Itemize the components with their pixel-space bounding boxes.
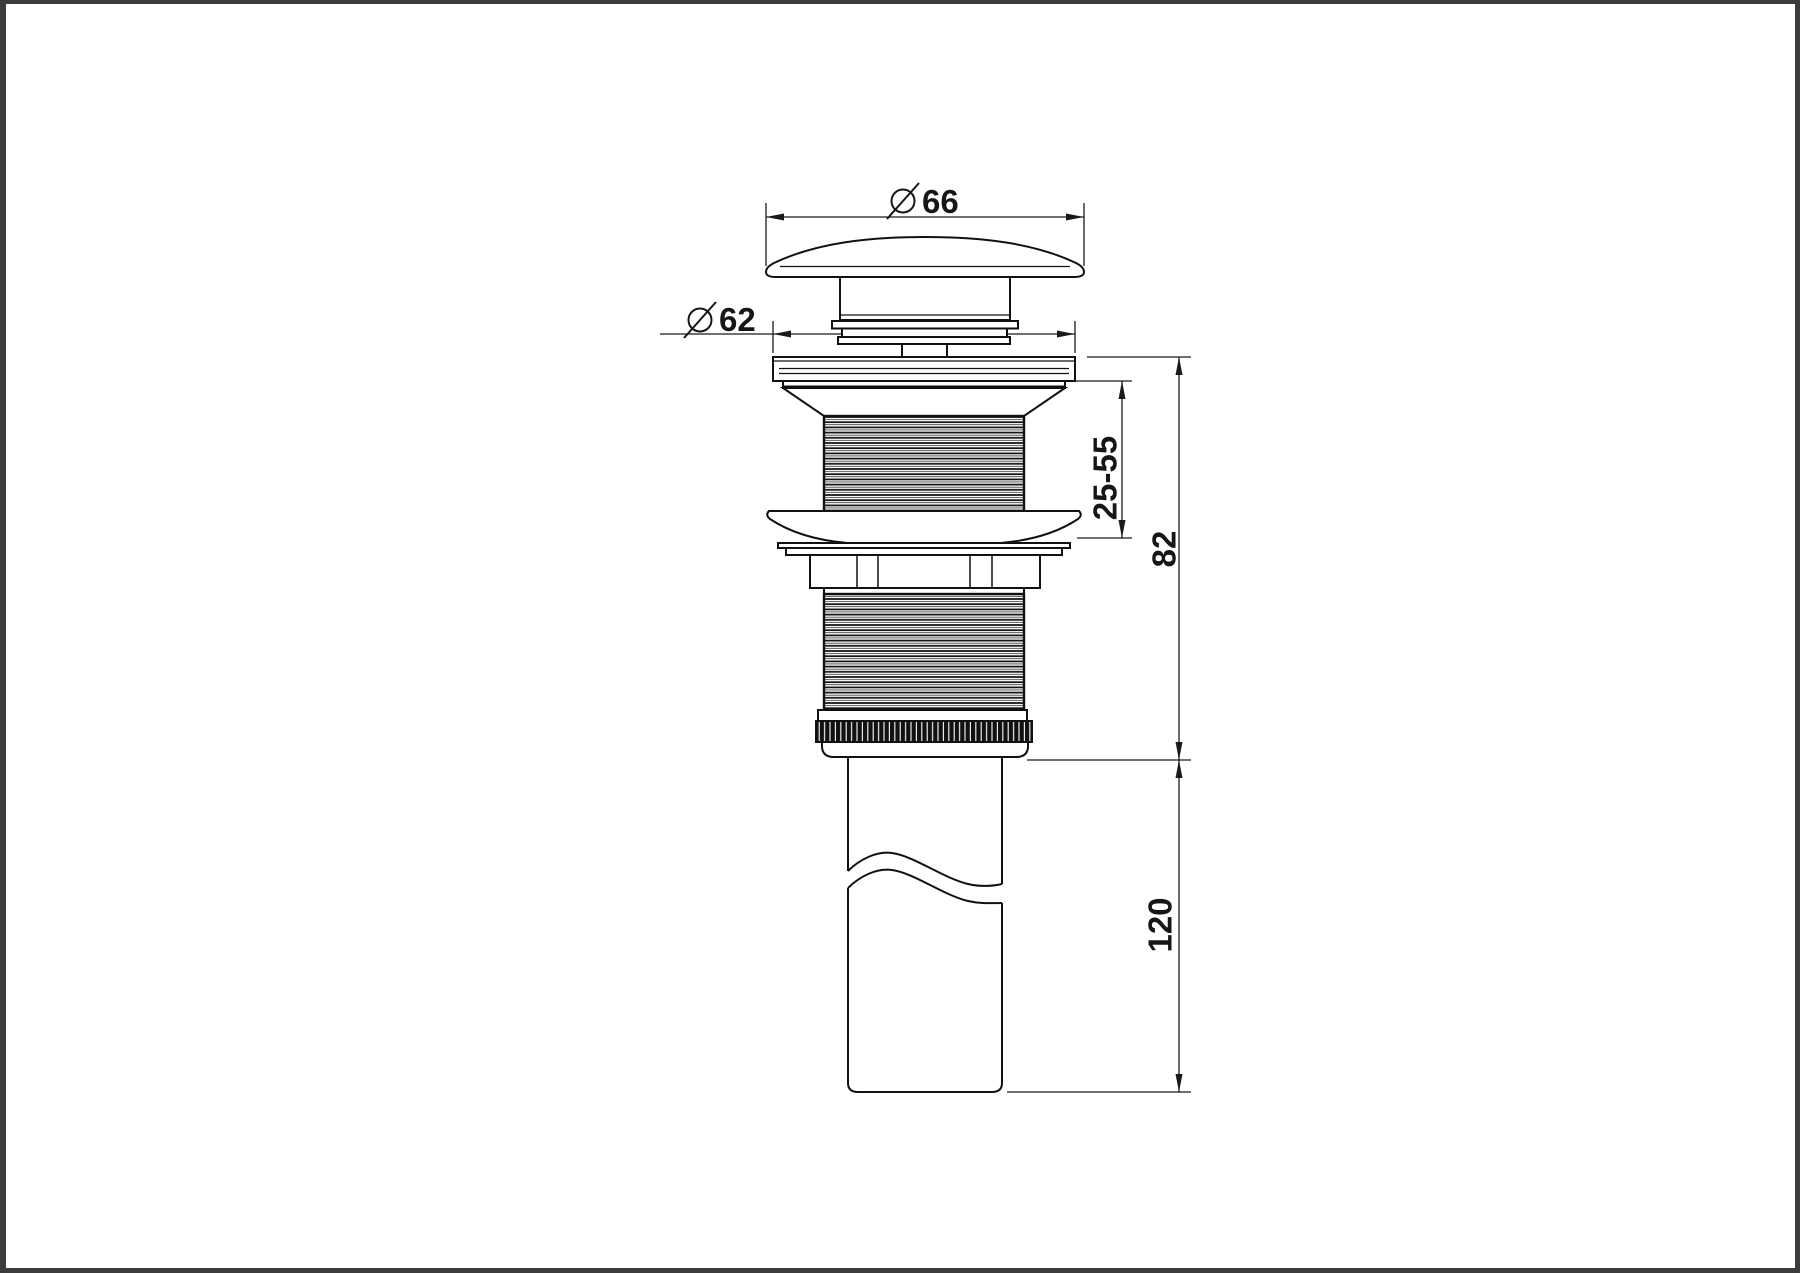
washer-step <box>786 548 1062 555</box>
arrowhead-left-icon <box>773 331 791 338</box>
ring-band <box>842 329 1007 338</box>
technical-drawing: 66 62 25-55 <box>0 0 1800 1273</box>
body-height-value: 82 <box>1146 531 1183 568</box>
ring-slab <box>838 337 1010 344</box>
diameter-symbol <box>684 302 716 338</box>
upper-collar <box>818 710 1027 721</box>
tailpipe <box>848 757 1002 1092</box>
arrowhead-up-icon <box>1176 357 1183 375</box>
tailpipe-lower-part <box>848 888 1002 1092</box>
cap-stem <box>840 277 1010 320</box>
dimension-tail-length: 120 <box>1007 760 1191 1092</box>
arrowhead-down-icon <box>1119 520 1126 538</box>
arrowhead-down-icon <box>1176 742 1183 760</box>
retaining-ring <box>832 321 1018 329</box>
lock-nut <box>810 555 1040 588</box>
sliding-washer <box>767 511 1081 543</box>
lower-collar <box>822 742 1028 757</box>
tail-length-value: 120 <box>1142 897 1179 952</box>
knurled-ring <box>816 721 1032 742</box>
break-wave-upper <box>848 853 1002 886</box>
arrowhead-left-icon <box>766 214 784 221</box>
diameter-symbol <box>887 183 919 219</box>
dimension-body-height: 82 <box>1027 357 1191 760</box>
cap-diameter-value: 66 <box>922 183 959 220</box>
cone-transition <box>783 388 1065 416</box>
mechanism-neck <box>902 344 947 357</box>
arrowhead-down-icon <box>1176 1074 1183 1092</box>
arrowhead-right-icon <box>1057 331 1075 338</box>
drain-body <box>766 237 1084 1092</box>
lower-thread-section <box>824 594 1024 710</box>
clamp-range-value: 25-55 <box>1087 436 1124 520</box>
flange-diameter-value: 62 <box>719 301 756 338</box>
arrowhead-up-icon <box>1119 381 1126 399</box>
arrowhead-up-icon <box>1176 760 1183 778</box>
arrowhead-right-icon <box>1066 214 1084 221</box>
drawing-canvas: 66 62 25-55 <box>0 0 1800 1273</box>
cap-dome <box>766 237 1084 277</box>
upper-thread-section <box>824 416 1024 511</box>
